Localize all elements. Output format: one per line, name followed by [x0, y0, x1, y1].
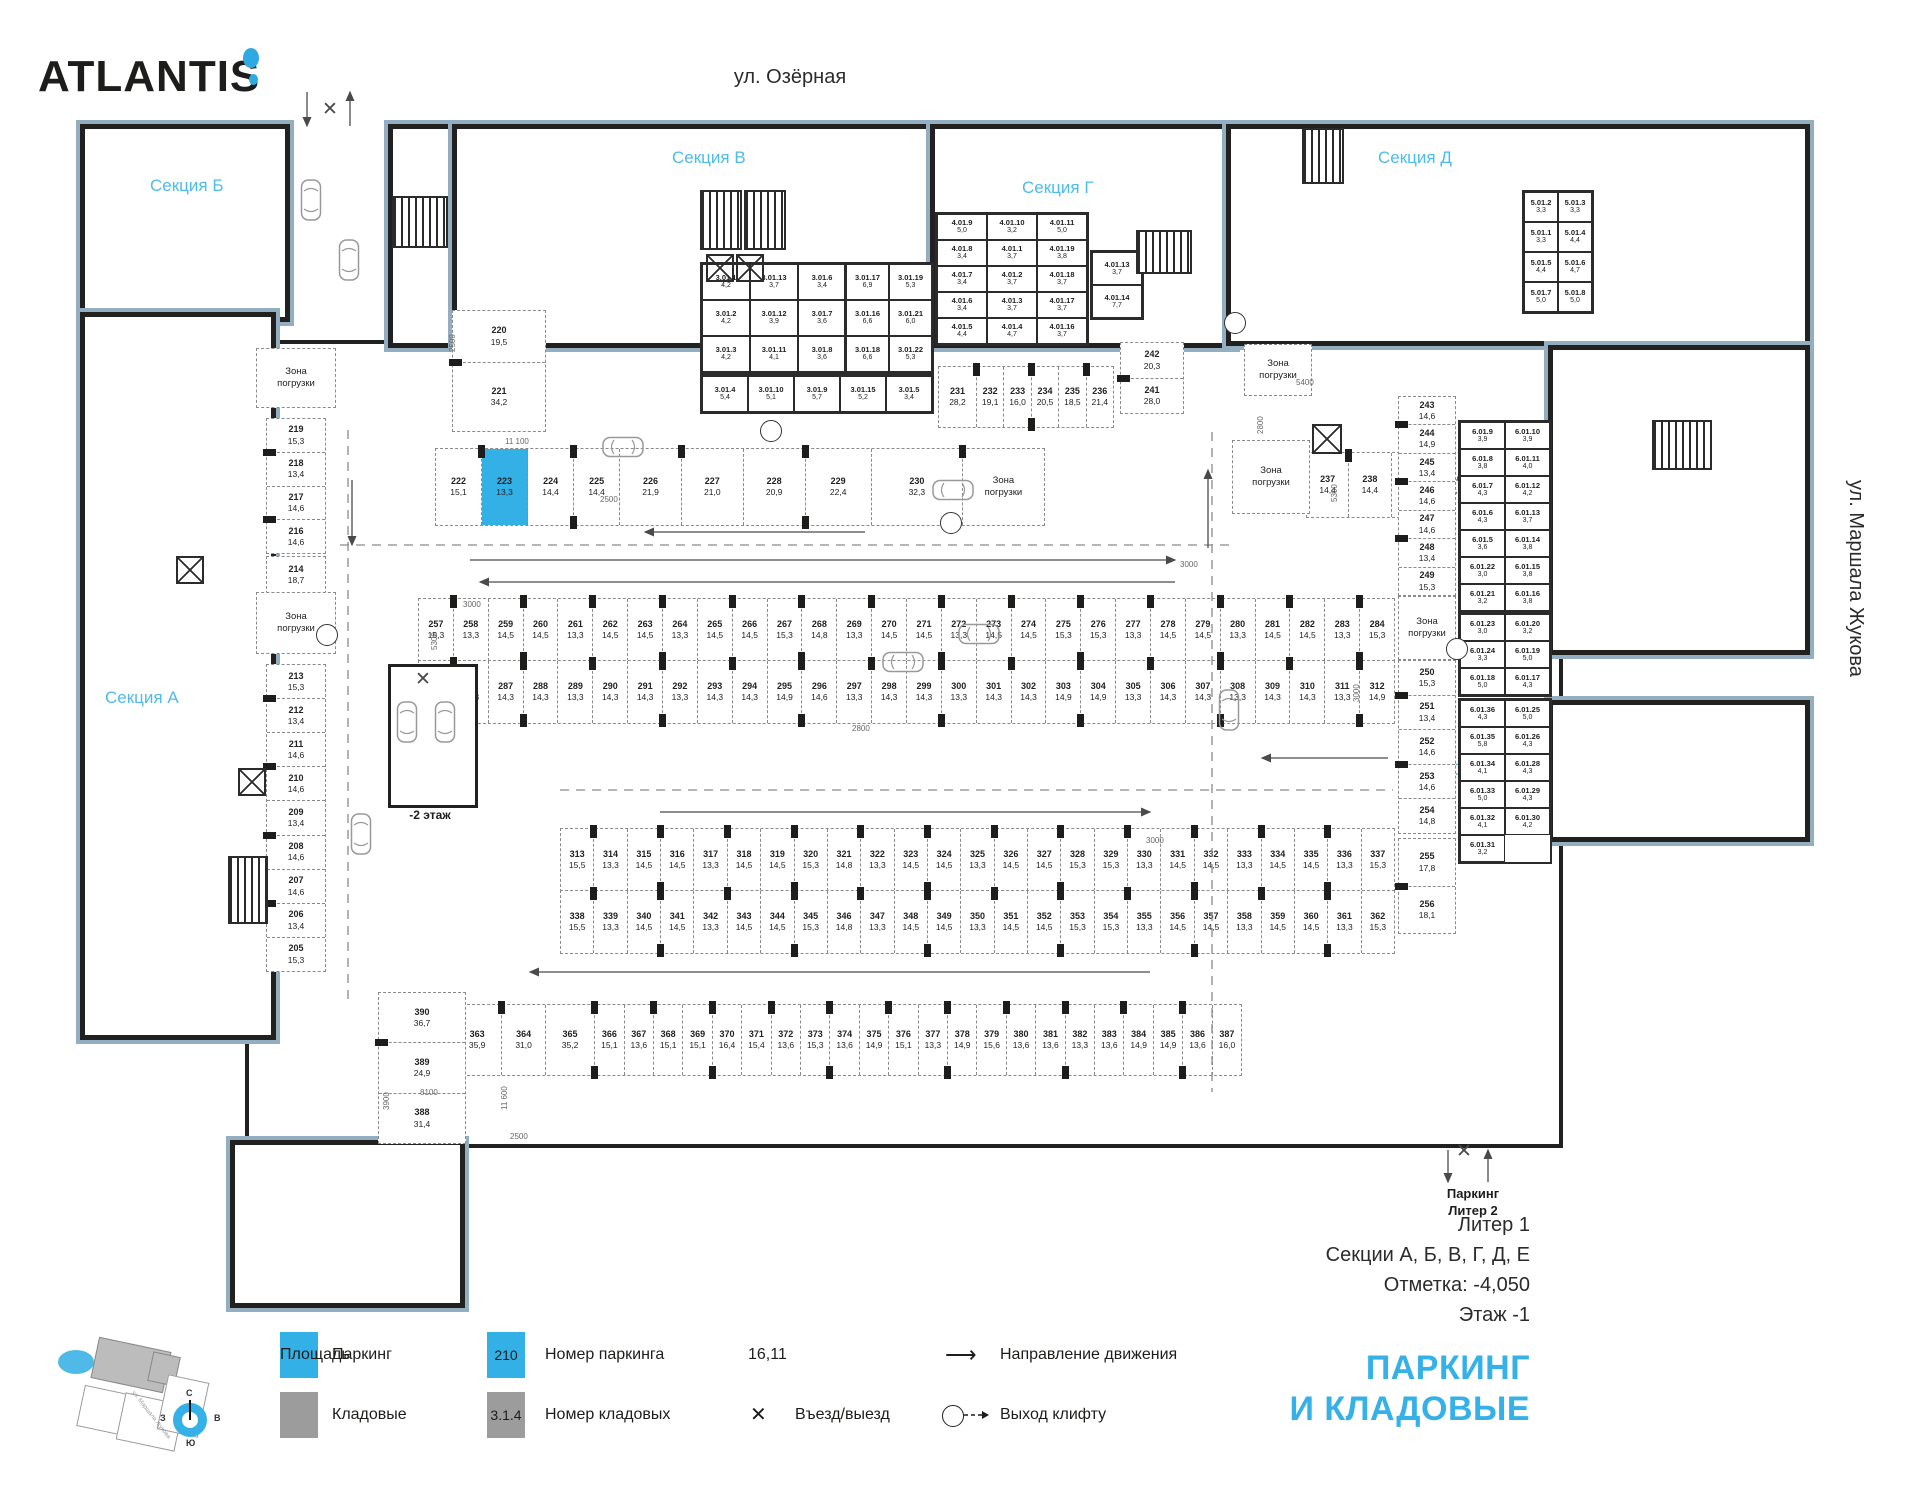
legend-storage-label: Кладовые	[332, 1392, 407, 1438]
parking-stall[interactable]: 32314,5	[895, 829, 928, 891]
storage-room[interactable]: 3.01.24,2	[702, 300, 750, 336]
compass-south-label: Ю	[186, 1438, 195, 1448]
dimension-label: 11 100	[505, 437, 529, 446]
parking-stall[interactable]: 35415,3	[1095, 891, 1128, 953]
storage-room[interactable]: 3.01.53,4	[886, 376, 932, 412]
parking-row: 25015,325113,425214,625314,625414,8	[1398, 660, 1456, 834]
stairs-icon	[228, 856, 268, 924]
compass-east-label: В	[214, 1413, 221, 1423]
parking-stall[interactable]: 29713,3	[837, 661, 872, 723]
parking-stall[interactable]: 38414,9	[1124, 1005, 1153, 1075]
parking-stall[interactable]: 36915,1	[683, 1005, 712, 1075]
car-icon	[338, 238, 360, 282]
parking-stall[interactable]: 35714,5	[1195, 891, 1228, 953]
storage-room[interactable]: 6.01.163,8	[1505, 584, 1550, 611]
parking-stall[interactable]: 38514,9	[1154, 1005, 1183, 1075]
parking-stall[interactable]: 23518,5	[1059, 367, 1086, 427]
parking-stall[interactable]: 22922,4	[806, 449, 872, 525]
storage-room[interactable]: 6.01.64,3	[1460, 503, 1505, 530]
loading-zone-label: Зонапогрузки	[963, 449, 1044, 525]
storage-room[interactable]: 4.01.54,4	[937, 318, 987, 344]
dimension-label: 5300	[430, 632, 439, 650]
storage-room[interactable]: 4.01.44,7	[987, 318, 1037, 344]
storage-room[interactable]: 3.01.166,6	[846, 300, 889, 336]
parking-stall[interactable]: 26715,3	[768, 599, 803, 661]
parking-stall[interactable]: 30114,3	[977, 661, 1012, 723]
section-label: Секция Д	[1378, 148, 1452, 168]
storage-room[interactable]: 6.01.133,7	[1505, 503, 1550, 530]
storage-room[interactable]: 6.01.195,0	[1505, 641, 1550, 668]
parking-stall[interactable]: 22414,4	[528, 449, 574, 525]
parking-stall[interactable]: 36815,1	[654, 1005, 683, 1075]
parking-stall[interactable]: 37915,6	[977, 1005, 1006, 1075]
parking-stall[interactable]: 23128,2	[939, 367, 977, 427]
parking-stall[interactable]: 26614,5	[733, 599, 768, 661]
parking-stall[interactable]: 32015,3	[795, 829, 828, 891]
storage-room[interactable]: 6.01.344,1	[1460, 754, 1505, 781]
car-icon	[396, 700, 418, 744]
parking-stall[interactable]: 21315,3	[267, 665, 325, 699]
parking-stall[interactable]: 29014,3	[593, 661, 628, 723]
storage-room[interactable]: 4.01.173,7	[1037, 292, 1087, 318]
parking-stall[interactable]: 34314,5	[728, 891, 761, 953]
parking-stall[interactable]: 22215,1	[436, 449, 482, 525]
parking-stall[interactable]: 20913,4	[267, 801, 325, 835]
storage-room[interactable]: 6.01.223,0	[1460, 557, 1505, 584]
parking-stall[interactable]: 32213,3	[861, 829, 894, 891]
parking-stall[interactable]: 23814,4	[1349, 453, 1391, 517]
parking-stall[interactable]: 38213,3	[1066, 1005, 1095, 1075]
parking-stall[interactable]: 34713,3	[861, 891, 894, 953]
parking-row: 24220,324128,0	[1120, 342, 1184, 414]
parking-row: 39036,738924,938831,4	[378, 992, 466, 1144]
storage-room[interactable]: 4.01.23,7	[987, 266, 1037, 292]
parking-stall[interactable]: 30214,3	[1012, 661, 1047, 723]
stairs-icon	[1136, 230, 1192, 274]
parking-stall[interactable]: 24220,3	[1121, 343, 1183, 379]
parking-stall[interactable]: 38924,9	[379, 1043, 465, 1093]
storage-room[interactable]: 5.01.85,0	[1558, 282, 1592, 312]
storage-room[interactable]: 4.01.33,7	[987, 292, 1037, 318]
storage-room[interactable]: 3.01.216,0	[889, 300, 932, 336]
storage-room[interactable]: 6.01.114,0	[1505, 449, 1550, 476]
parking-stall[interactable]: 34515,3	[795, 891, 828, 953]
storage-room[interactable]: 3.01.123,9	[750, 300, 798, 336]
parking-stall[interactable]: 22514,4	[574, 449, 620, 525]
brand-logo-dot-icon	[243, 48, 259, 68]
parking-stall[interactable]: 36113,3	[1328, 891, 1361, 953]
parking-stall[interactable]: 26913,3	[837, 599, 872, 661]
storage-room[interactable]: 3.01.83,6	[798, 336, 846, 372]
parking-stall[interactable]: 37413,6	[830, 1005, 859, 1075]
storage-room[interactable]: 5.01.64,7	[1558, 252, 1592, 282]
parking-stall[interactable]: 29314,3	[698, 661, 733, 723]
parking-stall[interactable]: 37315,3	[801, 1005, 830, 1075]
parking-stall[interactable]: 35813,3	[1228, 891, 1261, 953]
parking-stall[interactable]: 24414,9	[1399, 425, 1455, 453]
dimension-label: 8100	[420, 1088, 438, 1097]
parking-stall[interactable]: 24915,3	[1399, 568, 1455, 595]
parking-stall[interactable]: 37115,4	[742, 1005, 771, 1075]
parking-stall[interactable]: 38831,4	[379, 1094, 465, 1143]
parking-stall[interactable]: 28415,3	[1360, 599, 1394, 661]
parking-stall[interactable]: 25414,8	[1399, 799, 1455, 833]
building-block	[1548, 700, 1810, 842]
parking-stall[interactable]: 38613,6	[1183, 1005, 1212, 1075]
entry-exit-icon: ✕	[415, 668, 431, 691]
parking-stall[interactable]: 31315,5	[561, 829, 594, 891]
legend-direction-label: Направление движения	[1000, 1332, 1177, 1378]
storage-room[interactable]: 3.01.186,6	[846, 336, 889, 372]
parking-row: 21915,321813,421714,621614,6	[266, 418, 326, 554]
storage-room[interactable]: 6.01.213,2	[1460, 584, 1505, 611]
storage-room[interactable]: 6.01.313,2	[1460, 835, 1505, 862]
parking-stall[interactable]: 34213,3	[694, 891, 727, 953]
storage-room[interactable]: 6.01.203,2	[1505, 614, 1550, 641]
elevator-icon	[238, 768, 266, 796]
storage-room[interactable]: 3.01.225,3	[889, 336, 932, 372]
storage-room[interactable]: 6.01.53,6	[1460, 530, 1505, 557]
parking-stall[interactable]: 36014,5	[1295, 891, 1328, 953]
parking-stall[interactable]: 30714,3	[1186, 661, 1221, 723]
parking-stall[interactable]: 23621,4	[1087, 367, 1113, 427]
parking-stall[interactable]: 28313,3	[1325, 599, 1360, 661]
storage-room[interactable]: 5.01.75,0	[1524, 282, 1558, 312]
storage-room[interactable]: 6.01.83,8	[1460, 449, 1505, 476]
parking-stall[interactable]: 31514,5	[628, 829, 661, 891]
parking-stall[interactable]: 23420,5	[1032, 367, 1059, 427]
parking-stall[interactable]: 24614,6	[1399, 482, 1455, 510]
parking-stall[interactable]: 25618,1	[1399, 887, 1455, 934]
parking-stall[interactable]: 30314,9	[1046, 661, 1081, 723]
parking-stall[interactable]: 20714,6	[267, 870, 325, 904]
storage-room[interactable]: 5.01.23,3	[1524, 192, 1558, 222]
parking-stall[interactable]: 24813,4	[1399, 539, 1455, 567]
storage-room[interactable]: 3.01.73,6	[798, 300, 846, 336]
parking-stall[interactable]: 36713,6	[625, 1005, 654, 1075]
parking-stall[interactable]: 31814,5	[728, 829, 761, 891]
storage-room[interactable]: 4.01.83,4	[937, 240, 987, 266]
parking-stall[interactable]: 29514,9	[768, 661, 803, 723]
parking-stall[interactable]: 26314,5	[628, 599, 663, 661]
parking-stall[interactable]: 23219,1	[977, 367, 1004, 427]
parking-stall[interactable]: 38013,6	[1007, 1005, 1036, 1075]
parking-stall[interactable]: 25113,4	[1399, 696, 1455, 731]
parking-stall[interactable]: 33313,3	[1228, 829, 1261, 891]
storage-room[interactable]: 6.01.355,8	[1460, 727, 1505, 754]
car-icon	[300, 178, 322, 222]
parking-row: 36335,936431,036535,236615,136713,636815…	[452, 1004, 1242, 1076]
parking-stall[interactable]: 23714,4	[1307, 453, 1349, 517]
parking-stall[interactable]: 34914,5	[928, 891, 961, 953]
parking-row: 23128,223219,123316,023420,523518,523621…	[938, 366, 1114, 428]
parking-stall[interactable]: 21213,4	[267, 699, 325, 733]
parking-stall[interactable]: 26113,3	[558, 599, 593, 661]
parking-stall[interactable]: 33414,5	[1262, 829, 1295, 891]
parking-stall[interactable]: 21813,4	[267, 453, 325, 487]
storage-room[interactable]: 6.01.364,3	[1460, 700, 1505, 727]
parking-stall[interactable]: 35114,5	[995, 891, 1028, 953]
parking-stall[interactable]: 33114,5	[1161, 829, 1194, 891]
parking-stall[interactable]: 27914,5	[1186, 599, 1221, 661]
parking-stall[interactable]: 36215,3	[1362, 891, 1394, 953]
parking-stall[interactable]: 30414,9	[1081, 661, 1116, 723]
parking-stall[interactable]: 37713,3	[919, 1005, 948, 1075]
parking-row: 31315,531413,331514,531614,531713,331814…	[560, 828, 1395, 892]
parking-stall[interactable]: 28013,3	[1221, 599, 1256, 661]
car-icon	[881, 651, 925, 673]
parking-stall[interactable]: 27515,3	[1046, 599, 1081, 661]
storage-room[interactable]: 6.01.233,0	[1460, 614, 1505, 641]
parking-stall[interactable]: 26413,3	[663, 599, 698, 661]
parking-stall[interactable]: 35315,3	[1061, 891, 1094, 953]
storage-room[interactable]: 4.01.163,7	[1037, 318, 1087, 344]
storage-room[interactable]: 6.01.103,9	[1505, 422, 1550, 449]
legend-parking-number-swatch: 210	[487, 1332, 525, 1378]
storage-room[interactable]: 6.01.304,2	[1505, 808, 1550, 835]
dimension-label: 2500	[448, 334, 457, 352]
parking-stall[interactable]: 35614,5	[1161, 891, 1194, 953]
parking-stall[interactable]: 31413,3	[594, 829, 627, 891]
parking-row: 25517,825618,1	[1398, 838, 1456, 934]
parking-stall[interactable]: 39036,7	[379, 993, 465, 1043]
parking-stall[interactable]: 34014,5	[628, 891, 661, 953]
parking-stall[interactable]: 31214,9	[1360, 661, 1394, 723]
storage-room[interactable]: 4.01.63,4	[937, 292, 987, 318]
storage-room[interactable]: 4.01.183,7	[1037, 266, 1087, 292]
parking-stall[interactable]: 21614,6	[267, 520, 325, 553]
parking-stall[interactable]: 34614,8	[828, 891, 861, 953]
parking-stall[interactable]: 37814,9	[948, 1005, 977, 1075]
parking-stall[interactable]: 26214,5	[593, 599, 628, 661]
parking-row: 22019,522134,2	[452, 310, 546, 432]
compass-north-label: С	[186, 1388, 193, 1398]
legend-parking-number-label: Номер паркинга	[545, 1332, 664, 1378]
parking-stall[interactable]: 22820,9	[744, 449, 806, 525]
storage-room[interactable]: 6.01.153,8	[1505, 557, 1550, 584]
parking-stall[interactable]: 20613,4	[267, 904, 325, 938]
parking-stall[interactable]: 32714,5	[1028, 829, 1061, 891]
parking-stall[interactable]: 30513,3	[1116, 661, 1151, 723]
loading-zone-label: Зонапогрузки	[256, 348, 336, 408]
storage-room[interactable]: 4.01.115,0	[1037, 214, 1087, 240]
parking-stall[interactable]: 33514,5	[1295, 829, 1328, 891]
parking-stall[interactable]: 32915,3	[1095, 829, 1128, 891]
compass-west-label: З	[160, 1413, 166, 1423]
storage-group: 3.01.45,43.01.105,13.01.95,73.01.155,23.…	[700, 374, 934, 414]
section-label: Секция А	[105, 688, 179, 708]
storage-room[interactable]: 6.01.124,2	[1505, 476, 1550, 503]
parking-stall[interactable]: 34114,5	[661, 891, 694, 953]
elevator-icon	[176, 556, 204, 584]
dimension-label: 3000	[1352, 684, 1361, 702]
parking-stall[interactable]: 36535,2	[546, 1005, 595, 1075]
minimap-lake	[58, 1350, 94, 1374]
parking-stall[interactable]: 34414,5	[761, 891, 794, 953]
parking-stall[interactable]: 37615,1	[889, 1005, 918, 1075]
storage-room[interactable]: 3.01.155,2	[840, 376, 886, 412]
parking-stall[interactable]: 38716,0	[1213, 1005, 1241, 1075]
parking-stall[interactable]: 26814,8	[802, 599, 837, 661]
parking-stall[interactable]: 28913,3	[558, 661, 593, 723]
parking-stall[interactable]: 33613,3	[1328, 829, 1361, 891]
storage-room[interactable]: 6.01.143,8	[1505, 530, 1550, 557]
storage-room[interactable]: 6.01.174,3	[1505, 668, 1550, 695]
parking-stall[interactable]: 31713,3	[694, 829, 727, 891]
dimension-label: 3000	[1180, 560, 1198, 569]
parking-stall[interactable]: 26514,5	[698, 599, 733, 661]
parking-stall[interactable]: 33913,3	[594, 891, 627, 953]
lift-exit-icon	[316, 624, 338, 646]
parking-stall[interactable]: 22134,2	[453, 363, 545, 431]
parking-stall[interactable]: 37213,6	[772, 1005, 801, 1075]
parking-stall-highlighted[interactable]: 22313,3	[482, 449, 528, 525]
parking-stall[interactable]: 32513,3	[961, 829, 994, 891]
storage-room[interactable]: 3.01.63,4	[798, 264, 846, 300]
parking-stall[interactable]: 25314,6	[1399, 765, 1455, 800]
storage-room[interactable]: 6.01.294,3	[1505, 781, 1550, 808]
parking-stall[interactable]: 32614,5	[995, 829, 1028, 891]
parking-stall[interactable]: 27814,5	[1151, 599, 1186, 661]
storage-group: 6.01.233,06.01.203,26.01.243,36.01.195,0…	[1458, 612, 1552, 697]
parking-stall[interactable]: 27414,5	[1012, 599, 1047, 661]
parking-stall[interactable]: 25715,3	[419, 599, 454, 661]
parking-stall[interactable]: 28114,5	[1256, 599, 1291, 661]
parking-stall[interactable]: 31614,5	[661, 829, 694, 891]
parking-stall[interactable]: 24128,0	[1121, 379, 1183, 414]
parking-stall[interactable]: 35914,5	[1262, 891, 1295, 953]
parking-stall[interactable]: 21014,6	[267, 767, 325, 801]
parking-stall[interactable]: 37016,4	[713, 1005, 742, 1075]
storage-room[interactable]: 5.01.54,4	[1524, 252, 1558, 282]
storage-room[interactable]: 4.01.13,7	[987, 240, 1037, 266]
storage-room[interactable]: 6.01.74,3	[1460, 476, 1505, 503]
storage-room[interactable]: 5.01.33,3	[1558, 192, 1592, 222]
parking-stall[interactable]: 22621,9	[620, 449, 682, 525]
section-label: Секция Г	[1022, 178, 1094, 198]
parking-row: 21315,321213,421114,621014,620913,420814…	[266, 664, 326, 972]
parking-stall[interactable]: 22721,0	[682, 449, 744, 525]
parking-stall[interactable]: 35513,3	[1128, 891, 1161, 953]
lift-exit-icon	[760, 420, 782, 442]
parking-stall[interactable]: 21418,7	[267, 557, 325, 593]
stairs-icon	[1302, 128, 1344, 184]
parking-stall[interactable]: 21915,3	[267, 419, 325, 453]
parking-stall[interactable]: 38113,6	[1036, 1005, 1065, 1075]
parking-stall[interactable]: 32414,5	[928, 829, 961, 891]
storage-room[interactable]: 4.01.193,8	[1037, 240, 1087, 266]
storage-room[interactable]: 6.01.93,9	[1460, 422, 1505, 449]
storage-room[interactable]: 6.01.255,0	[1505, 700, 1550, 727]
parking-stall[interactable]: 35013,3	[961, 891, 994, 953]
parking-stall[interactable]: 27615,3	[1081, 599, 1116, 661]
storage-room[interactable]: 6.01.335,0	[1460, 781, 1505, 808]
parking-stall[interactable]: 31914,5	[761, 829, 794, 891]
storage-room[interactable]: 3.01.105,1	[748, 376, 794, 412]
parking-stall[interactable]: 22019,5	[453, 311, 545, 363]
parking-stall[interactable]: 25914,5	[489, 599, 524, 661]
lift-exit-icon	[940, 512, 962, 534]
parking-stall[interactable]: 33715,3	[1362, 829, 1394, 891]
street-label-right: ул. Маршала Жукова	[1844, 480, 1867, 740]
parking-stall[interactable]: 29414,3	[733, 661, 768, 723]
section-label: Секция Б	[150, 176, 224, 196]
storage-room[interactable]: 6.01.264,3	[1505, 727, 1550, 754]
parking-stall[interactable]: 28214,5	[1290, 599, 1325, 661]
parking-stall[interactable]: 29114,3	[628, 661, 663, 723]
parking-stall[interactable]: 35214,5	[1028, 891, 1061, 953]
parking-stall[interactable]: 26014,5	[524, 599, 559, 661]
legend-storage-number-label: Номер кладовых	[545, 1392, 670, 1438]
car-icon	[350, 812, 372, 856]
parking-stall[interactable]: 31014,3	[1290, 661, 1325, 723]
storage-room[interactable]: 5.01.13,3	[1524, 222, 1558, 252]
parking-stall[interactable]: 28814,3	[524, 661, 559, 723]
brand-logo: ATLANTIS	[38, 52, 260, 102]
storage-room[interactable]: 6.01.185,0	[1460, 668, 1505, 695]
parking-stall[interactable]: 33214,5	[1195, 829, 1228, 891]
storage-room[interactable]: 4.01.147,7	[1092, 285, 1142, 318]
parking-stall[interactable]: 20814,6	[267, 836, 325, 870]
parking-stall[interactable]: 21114,6	[267, 733, 325, 767]
parking-stall[interactable]: 32815,3	[1061, 829, 1094, 891]
lift-exit-icon	[1446, 638, 1468, 660]
storage-room[interactable]: 3.01.45,4	[702, 376, 748, 412]
storage-room[interactable]: 6.01.284,3	[1505, 754, 1550, 781]
parking-stall[interactable]: 34814,5	[895, 891, 928, 953]
parking-stall[interactable]: 27713,3	[1116, 599, 1151, 661]
storage-room[interactable]: 3.01.195,3	[889, 264, 932, 300]
parking-stall[interactable]: 32114,8	[828, 829, 861, 891]
storage-room[interactable]: 3.01.95,7	[794, 376, 840, 412]
legend-area-sample: 16,11	[748, 1332, 787, 1378]
parking-stall[interactable]: 30614,3	[1151, 661, 1186, 723]
storage-room[interactable]: 5.01.44,4	[1558, 222, 1592, 252]
parking-stall[interactable]: 30013,3	[942, 661, 977, 723]
storage-room[interactable]: 3.01.114,1	[750, 336, 798, 372]
parking-stall[interactable]: 38313,6	[1095, 1005, 1124, 1075]
parking-stall[interactable]: 30914,3	[1256, 661, 1291, 723]
parking-stall[interactable]: 21714,6	[267, 487, 325, 521]
storage-room[interactable]: 3.01.176,9	[846, 264, 889, 300]
legend-entry-label: Въезд/выезд	[795, 1392, 890, 1438]
parking-stall[interactable]: 25517,8	[1399, 839, 1455, 887]
storage-room[interactable]: 4.01.95,0	[937, 214, 987, 240]
dimension-label: 2800	[852, 724, 870, 733]
parking-stall[interactable]: 28714,3	[489, 661, 524, 723]
parking-stall[interactable]: 29213,3	[663, 661, 698, 723]
parking-stall[interactable]: 25015,3	[1399, 661, 1455, 696]
parking-stall[interactable]: 33815,5	[561, 891, 594, 953]
storage-room[interactable]: 6.01.324,1	[1460, 808, 1505, 835]
parking-stall[interactable]: 20515,3	[267, 938, 325, 971]
storage-room[interactable]: 4.01.103,2	[987, 214, 1037, 240]
parking-stall[interactable]: 36615,1	[595, 1005, 624, 1075]
dimension-label: 11 600	[500, 1086, 509, 1110]
compass-needle	[189, 1400, 191, 1420]
parking-stall[interactable]: 25214,6	[1399, 730, 1455, 765]
parking-row: 21418,7	[266, 556, 326, 594]
storage-room[interactable]: 4.01.73,4	[937, 266, 987, 292]
parking-stall[interactable]: 36431,0	[502, 1005, 546, 1075]
title-block: Литер 1 Секции А, Б, В, Г, Д, Е Отметка:…	[1326, 1210, 1530, 1330]
storage-group: 5.01.23,35.01.33,35.01.13,35.01.44,45.01…	[1522, 190, 1594, 314]
entry-exit-icon: ✕	[1456, 1140, 1472, 1163]
parking-stall[interactable]: 29614,6	[802, 661, 837, 723]
storage-room[interactable]: 4.01.133,7	[1092, 252, 1142, 285]
storage-room[interactable]: 3.01.34,2	[702, 336, 750, 372]
parking-stall[interactable]: 37514,9	[860, 1005, 889, 1075]
